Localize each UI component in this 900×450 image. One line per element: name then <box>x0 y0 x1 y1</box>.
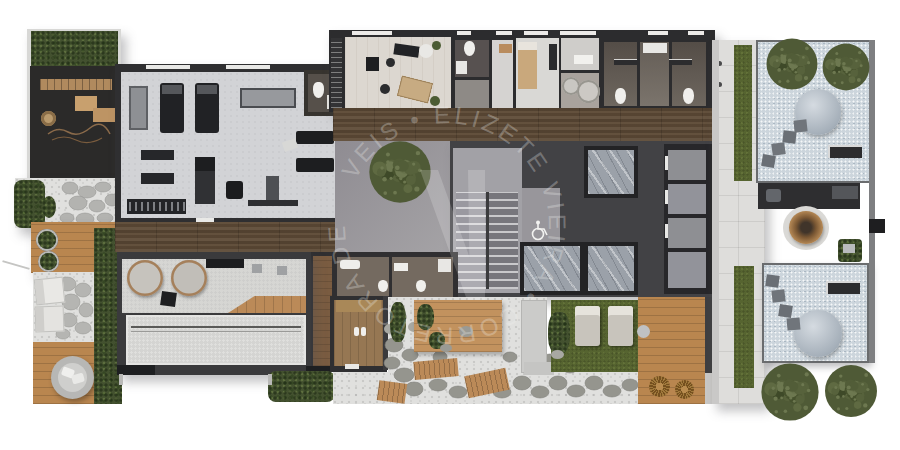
svg-text:VEIS • ELIZETE VIEIRA • CORRET: VEIS • ELIZETE VIEIRA • CORRETORA DE IMÓ <box>0 0 571 350</box>
